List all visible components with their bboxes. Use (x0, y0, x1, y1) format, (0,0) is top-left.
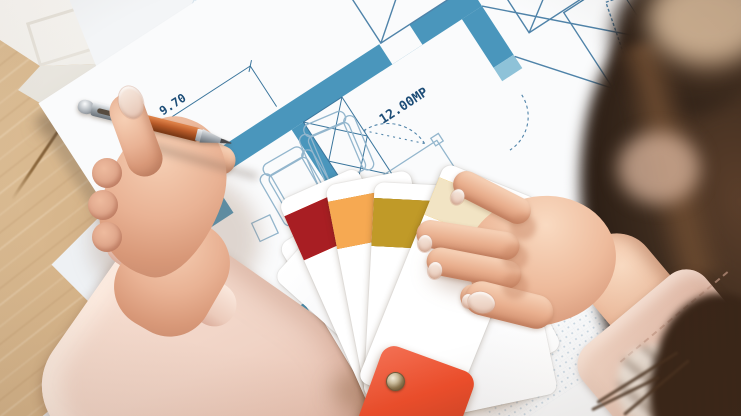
swatch-fan-rivet (386, 372, 405, 391)
photo-designer-floorplan: 9.70 12.00MP 8.20 2.20 (0, 0, 741, 416)
left-knuckle (92, 222, 122, 252)
knuckle-dimple (502, 273, 528, 299)
knuckle-dimple (510, 214, 536, 240)
cheek-blur (618, 132, 700, 204)
left-knuckle (92, 158, 122, 188)
left-knuckle (88, 190, 118, 220)
pen-nib (220, 138, 232, 146)
knuckle-dimple (502, 244, 528, 270)
